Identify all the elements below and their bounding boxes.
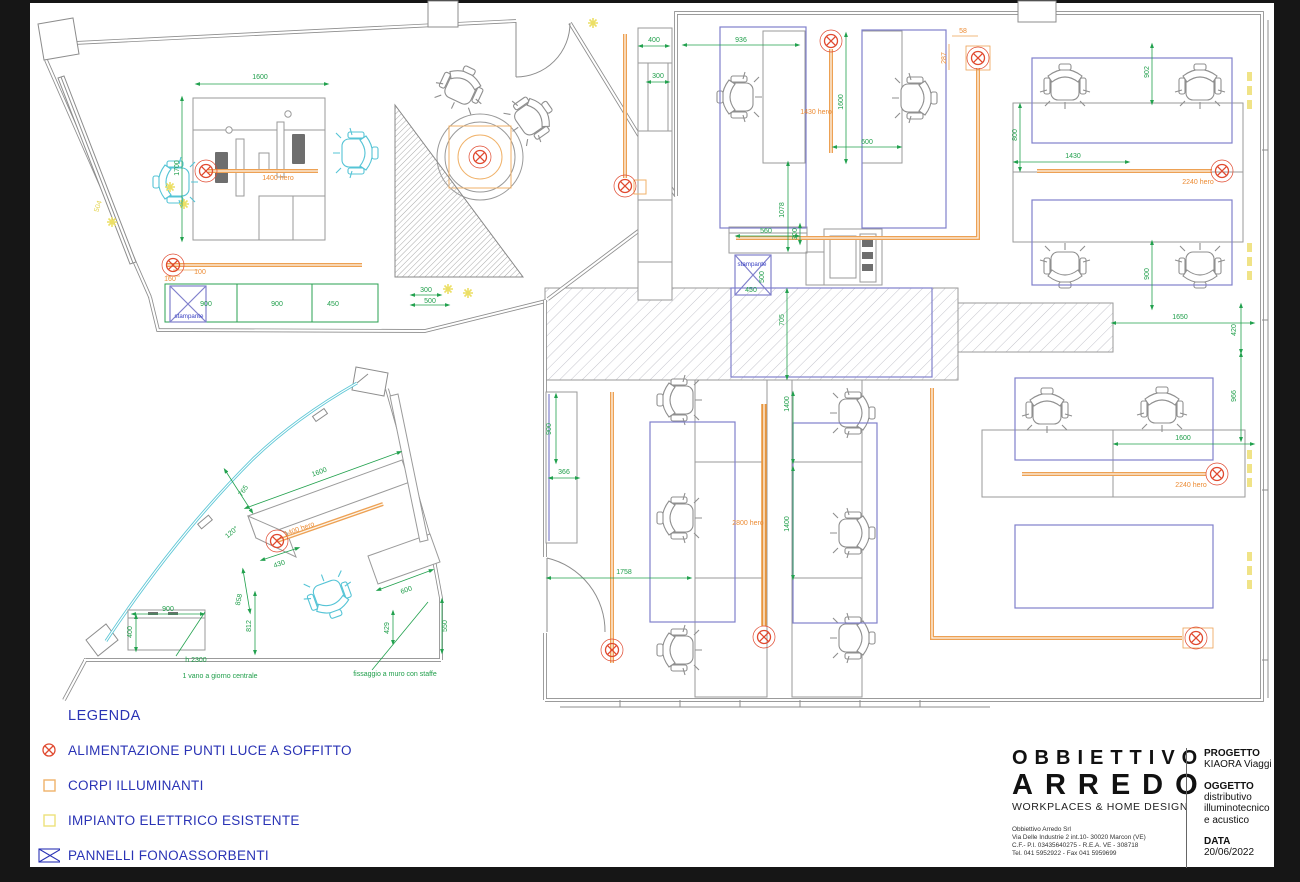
progetto-value: KIAORA Viaggi xyxy=(1204,759,1299,771)
sideboard xyxy=(546,392,577,543)
dim-label: 900 xyxy=(546,423,553,435)
note-label: h 2300 xyxy=(185,657,207,664)
company-address: Obbiettivo Arredo Srl Via Delle Industri… xyxy=(1012,826,1210,858)
legend-item-existing: IMPIANTO ELETTRICO ESISTENTE xyxy=(38,812,352,828)
legend-item-lights: CORPI ILLUMINANTI xyxy=(38,777,352,793)
acoustic-panel-icon xyxy=(38,848,60,863)
legend-item-power: ALIMENTAZIONE PUNTI LUCE A SOFFITTO xyxy=(38,742,352,758)
dim-label: 400 xyxy=(127,626,134,638)
dim-label: stampante xyxy=(738,261,767,268)
dim-label: 58 xyxy=(959,28,967,35)
pillar xyxy=(1018,1,1056,22)
dim-label: 800 xyxy=(1012,129,1019,141)
cad-floorplan-page: { "legend": { "title": "LEGENDA", "items… xyxy=(0,0,1300,867)
dim-label: 366 xyxy=(558,469,570,476)
legend-title: LEGENDA xyxy=(68,708,352,724)
dim-label: 300 xyxy=(652,73,664,80)
dim-label: 550 xyxy=(442,620,449,632)
dim-label: 300 xyxy=(420,287,432,294)
dim-label: 500 xyxy=(759,271,766,283)
legend-item-panels: PANNELLI FONOASSORBENTI xyxy=(38,847,352,863)
dim-label: 500 xyxy=(424,298,436,305)
dim-label: 1700 xyxy=(174,160,181,176)
dim-label: 900 xyxy=(200,301,212,308)
dim-label: 600 xyxy=(861,139,873,146)
oggetto-label: OGGETTO xyxy=(1204,781,1299,792)
dim-label: 966 xyxy=(1231,390,1238,402)
dim-label: 287 xyxy=(941,52,948,64)
dim-label: 900 xyxy=(1144,268,1151,280)
dim-label: 1758 xyxy=(616,569,632,576)
dim-label: 450 xyxy=(327,301,339,308)
keyboard xyxy=(292,134,305,164)
dim-label: 1400 xyxy=(784,516,791,532)
company-logo-line2: ARREDO xyxy=(1012,770,1210,800)
yellow-square-icon xyxy=(38,814,60,827)
dim-label: 400 xyxy=(648,37,660,44)
dim-label: 2240 hero xyxy=(1175,482,1207,489)
data-label: DATA xyxy=(1204,836,1299,847)
cabinet-column xyxy=(638,28,672,300)
project-info: PROGETTO KIAORA Viaggi OGGETTO distribut… xyxy=(1204,748,1299,859)
dim-label: 900 xyxy=(162,606,174,613)
company-tagline: WORKPLACES & HOME DESIGN xyxy=(1012,801,1210,813)
power-symbol-icon xyxy=(38,742,60,758)
note-label: fissaggio a muro con staffe xyxy=(353,671,437,678)
dim-label: 936 xyxy=(735,37,747,44)
dim-label: 450 xyxy=(745,287,757,294)
dim-label: 1600 xyxy=(1175,435,1191,442)
note-label: 1 vano a giorno centrale xyxy=(182,673,257,680)
dim-label: 1650 xyxy=(1172,314,1188,321)
dim-label: 812 xyxy=(246,620,253,632)
dim-label: 1400 xyxy=(784,396,791,412)
dim-label: 1430 xyxy=(1065,153,1081,160)
dim-label: 2800 hero xyxy=(732,520,764,527)
dim-label: 160 xyxy=(164,276,176,283)
keyboard xyxy=(215,152,228,183)
dim-label: 705 xyxy=(779,314,786,326)
dim-label: stampante xyxy=(175,313,204,320)
mouse xyxy=(285,111,291,117)
mouse xyxy=(226,127,232,133)
dim-label: 1600 xyxy=(838,94,845,110)
dim-label: 429 xyxy=(384,622,391,634)
monitor xyxy=(236,139,244,196)
dim-label: 560 xyxy=(760,228,772,235)
dim-label: 900 xyxy=(271,301,283,308)
orange-square-icon xyxy=(38,779,60,792)
dim-label: 300 xyxy=(792,228,799,240)
dim-label: 1600 xyxy=(252,74,268,81)
pillar xyxy=(38,18,79,60)
pillar xyxy=(428,1,458,27)
data-value: 20/06/2022 xyxy=(1204,847,1299,859)
title-block-divider xyxy=(1186,748,1187,868)
title-block: OBBIETTIVO ARREDO WORKPLACES & HOME DESI… xyxy=(1012,746,1210,858)
progetto-label: PROGETTO xyxy=(1204,748,1299,759)
dim-label: 1430 hero xyxy=(800,109,832,116)
monitor xyxy=(277,122,284,177)
dim-label: 1078 xyxy=(779,202,786,218)
dim-label: 420 xyxy=(1231,324,1238,336)
dim-label: 1400 hero xyxy=(262,175,294,182)
dim-label: 2240 hero xyxy=(1182,179,1214,186)
legend: LEGENDA ALIMENTAZIONE PUNTI LUCE A SOFFI… xyxy=(38,708,352,882)
dim-label: 100 xyxy=(194,269,206,276)
company-logo-line1: OBBIETTIVO xyxy=(1012,746,1210,770)
dim-label: 902 xyxy=(1144,66,1151,78)
